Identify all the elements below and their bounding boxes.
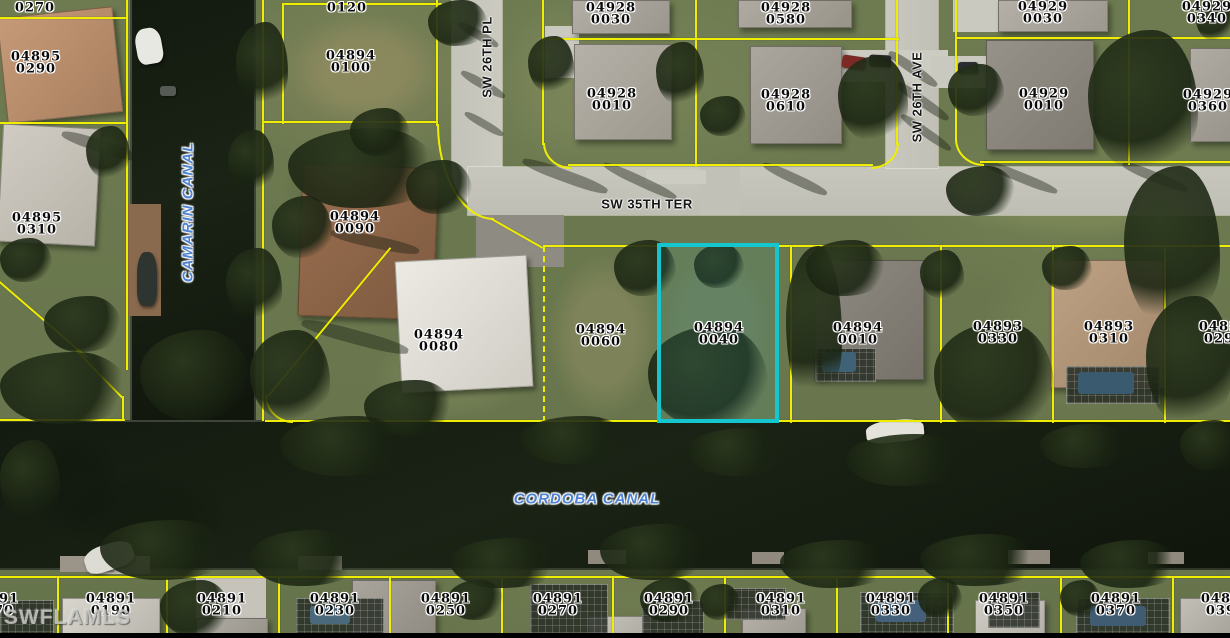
tree-canopy [1088, 30, 1198, 170]
parcel-line [0, 17, 128, 19]
parcel-lot-number: 0290 [1204, 331, 1230, 346]
parcel-line [0, 122, 128, 124]
house-roof [395, 255, 534, 394]
parcel-lot-number: 0610 [766, 99, 806, 114]
boat [137, 252, 157, 306]
tree-canopy [838, 56, 908, 140]
parcel-lot-number: 0340 [1187, 11, 1227, 26]
parcel-label: 04894 0090 [330, 212, 380, 235]
parcel-lot-number: 0010 [838, 332, 878, 347]
tree-canopy [100, 520, 230, 580]
parcel-line [956, 37, 1230, 39]
driveway [700, 167, 740, 215]
parcel-lot-number: 0330 [978, 331, 1018, 346]
parcel-lot-number: 0230 [315, 603, 355, 618]
parcel-lot-number: 0010 [1024, 98, 1064, 113]
parcel-label: 04929 0340 [1182, 2, 1230, 25]
tree-canopy [1042, 246, 1092, 290]
tree-canopy [600, 524, 710, 580]
parcel-label: 04929 0010 [1019, 89, 1069, 112]
parcel-label: 0120 [327, 2, 367, 14]
aerial-parcel-map: 0270 04895 0290 04895 0310 0120 04894 01… [0, 0, 1230, 638]
parcel-line [612, 576, 614, 638]
parcel-line-dashed [543, 246, 545, 422]
parcel-lot-number: 0390 [1206, 603, 1230, 618]
tree-canopy [700, 96, 746, 136]
parcel-label: 04891 0350 [979, 594, 1029, 617]
parcel-lot-number: 0310 [17, 222, 57, 237]
tree-canopy [350, 108, 410, 156]
tree-canopy [1080, 540, 1180, 588]
parcel-lot-number: 0330 [871, 603, 911, 618]
parcel-lot-number: 0210 [202, 603, 242, 618]
tree-canopy [520, 416, 630, 464]
parcel-line [278, 576, 280, 638]
parcel-label: 04928 0030 [586, 3, 636, 26]
tree-canopy [226, 248, 282, 320]
parcel-lot-number: 0250 [426, 603, 466, 618]
parcel-line [980, 161, 1230, 163]
parcel-label: 04894 0080 [414, 330, 464, 353]
parcel-lot-number: 0360 [1188, 99, 1228, 114]
tree-canopy [406, 160, 472, 214]
tree-canopy [236, 22, 288, 108]
tree-canopy [656, 42, 704, 104]
tree-canopy [688, 428, 788, 476]
parcel-label: 04894 0100 [326, 51, 376, 74]
tree-canopy [528, 36, 574, 92]
parcel-book-number: 0270 [15, 0, 55, 15]
mls-watermark: SWFLAMLS [4, 606, 131, 630]
parcel-label: 04929 0030 [1018, 2, 1068, 25]
parcel-label: 04893 0310 [1084, 322, 1134, 345]
parcel-label: 04928 0580 [761, 3, 811, 26]
parcel-line [568, 164, 873, 166]
parcel-label: 04894 0060 [576, 325, 626, 348]
parcel-lot-number: 0090 [335, 221, 375, 236]
parcel-lot-number: 0060 [581, 334, 621, 349]
tree-canopy [918, 578, 962, 618]
tree-canopy [806, 240, 886, 296]
parcel-line [262, 121, 438, 123]
street-name-label: SW 35TH TER [601, 197, 692, 212]
tree-canopy [1146, 296, 1230, 426]
tree-canopy [250, 530, 360, 586]
parcel-line [126, 0, 128, 370]
parcel-lot-number: 0030 [1023, 11, 1063, 26]
parcel-label: 04894 0010 [833, 323, 883, 346]
tree-canopy [780, 540, 890, 588]
parcel-label: 04895 0290 [11, 52, 61, 75]
canal-name-label: CAMARIN CANAL [180, 142, 197, 283]
tree-canopy [228, 130, 274, 192]
tree-canopy [250, 330, 330, 420]
parcel-label: 04895 0310 [12, 213, 62, 236]
street-name-label: SW 26TH PL [480, 16, 495, 98]
parcel-lot-number: 0080 [419, 339, 459, 354]
tree-canopy [0, 238, 52, 282]
tree-canopy [272, 196, 332, 258]
canal-name-label: CORDOBA CANAL [514, 491, 661, 508]
tree-canopy [280, 416, 410, 476]
parcel-label: 04894 0040 [694, 323, 744, 346]
tree-canopy [44, 296, 122, 352]
parcel-book-number: 0120 [327, 0, 367, 15]
parcel-lot-number: 0350 [984, 603, 1024, 618]
parcel-label: 04891 0210 [197, 594, 247, 617]
tree-canopy [846, 434, 966, 486]
tree-canopy [946, 166, 1016, 216]
parcel-lot-number: 0290 [16, 61, 56, 76]
parcel-lot-number: 0310 [761, 603, 801, 618]
tree-canopy [140, 330, 250, 420]
car [160, 86, 176, 96]
parcel-lot-number: 0580 [766, 12, 806, 27]
parcel-label: 04929 0360 [1183, 90, 1230, 113]
parcel-lot-number: 0270 [538, 603, 578, 618]
parcel-lot-number: 0100 [331, 60, 371, 75]
parcel-label: 04893 0290 [1199, 322, 1230, 345]
parcel-lot-number: 0040 [699, 332, 739, 347]
tree-canopy [0, 440, 60, 520]
driveway [953, 0, 999, 32]
parcel-label: 04891 0390 [1201, 594, 1230, 617]
street-name-label: SW 26TH AVE [910, 52, 925, 143]
parcel-label: 04891 0290 [644, 594, 694, 617]
tree-canopy [0, 352, 130, 424]
tree-canopy [86, 126, 130, 178]
parcel-label: 04891 0330 [866, 594, 916, 617]
parcel-label: 04893 0330 [973, 322, 1023, 345]
parcel-label: 04928 0610 [761, 90, 811, 113]
parcel-label: 04891 0250 [421, 594, 471, 617]
parcel-label: 04891 0370 [1091, 594, 1141, 617]
parcel-label: 0270 [15, 2, 55, 14]
parcel-label: 04891 0230 [310, 594, 360, 617]
tree-canopy [920, 250, 964, 298]
tree-canopy [700, 584, 740, 620]
parcel-line [389, 576, 391, 638]
parcel-label: 04891 0270 [533, 594, 583, 617]
parcel-lot-number: 0370 [1096, 603, 1136, 618]
parcel-line [1172, 576, 1174, 638]
parcel-line [543, 38, 899, 40]
bottom-black-bar [0, 633, 1230, 638]
parcel-line-arc [955, 139, 984, 166]
parcel-lot-number: 0030 [591, 12, 631, 27]
parcel-label: 04891 0310 [756, 594, 806, 617]
tree-canopy [1180, 420, 1230, 470]
tree-canopy [948, 64, 1004, 116]
parcel-lot-number: 0010 [592, 98, 632, 113]
tree-canopy [1040, 424, 1130, 468]
swimming-pool [1078, 372, 1134, 394]
parcel-lot-number: 0290 [649, 603, 689, 618]
parcel-label: 04928 0010 [587, 89, 637, 112]
street-sw-35th-ter [468, 167, 1230, 215]
parcel-lot-number: 0310 [1089, 331, 1129, 346]
